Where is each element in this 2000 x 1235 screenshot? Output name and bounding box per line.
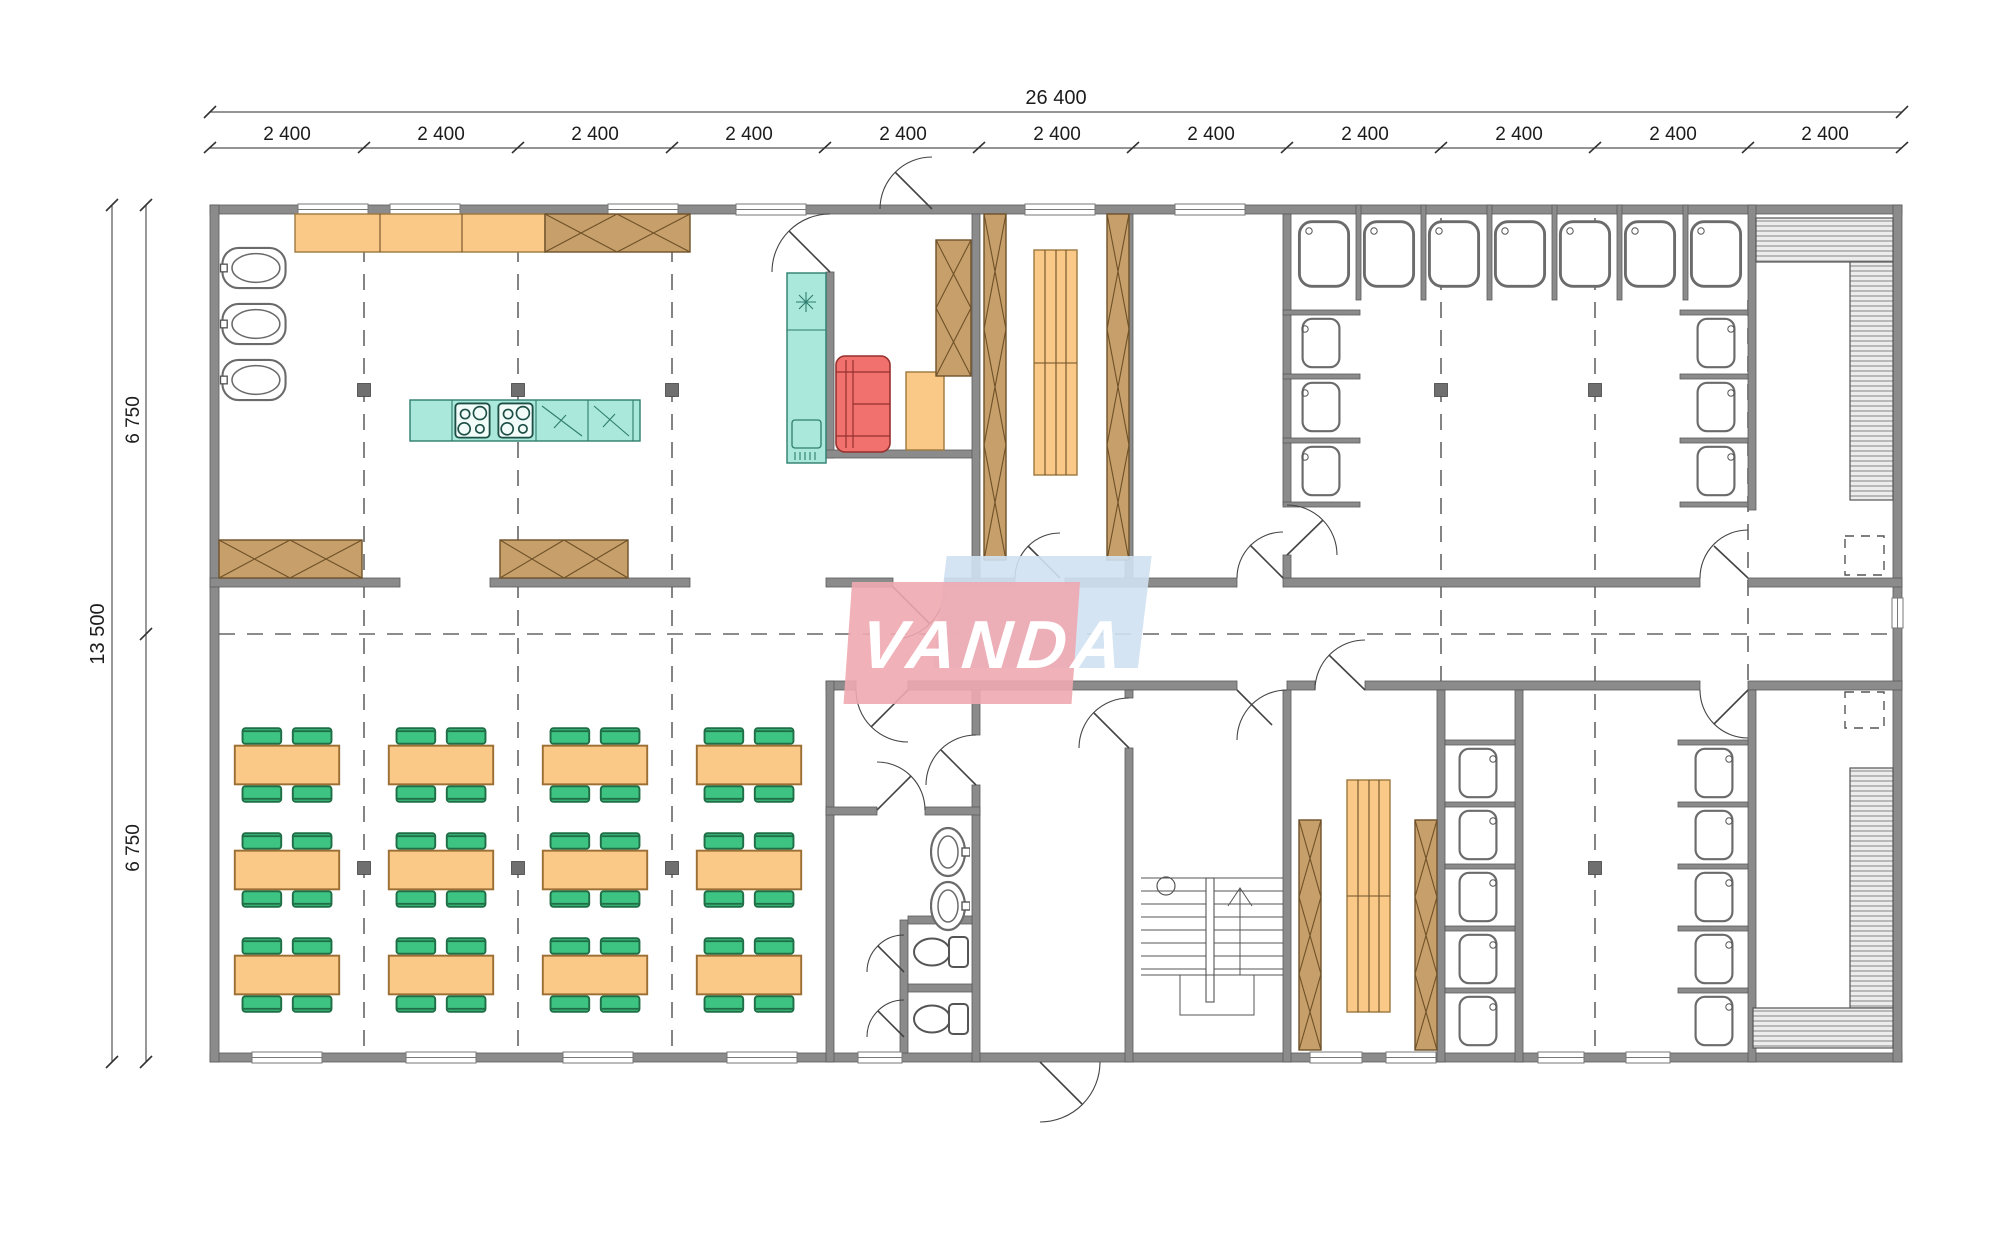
stair-start-marker — [1157, 877, 1175, 895]
window — [1538, 1052, 1584, 1063]
shower-tray — [1303, 383, 1340, 431]
window — [1025, 204, 1095, 215]
door — [772, 214, 830, 272]
dining-set — [697, 833, 801, 906]
shower-tray — [1560, 222, 1609, 287]
wc-area — [914, 828, 970, 1034]
bay-label-3: 2 400 — [571, 124, 619, 145]
watermark-text: VANDA — [857, 607, 1132, 683]
dimension-top-total: 26 400 — [204, 87, 1908, 118]
bay-label-2: 2 400 — [417, 124, 465, 145]
staff-table — [906, 372, 944, 450]
window — [727, 1052, 797, 1063]
serving-counter-hatched — [219, 540, 362, 578]
dining-set — [697, 728, 801, 801]
stove-top — [498, 403, 532, 437]
shower-tray — [1303, 447, 1340, 495]
stair-lower-flight — [1180, 975, 1254, 1015]
door — [1237, 532, 1283, 578]
shower-tray — [1691, 222, 1740, 287]
window — [1310, 1052, 1362, 1063]
toilet — [914, 1004, 968, 1034]
total-height-label: 13 500 — [87, 603, 109, 664]
bench-slatted — [1756, 218, 1893, 500]
floor-plan-drawing: 26 400 2 400 2 400 2 400 2 400 2 400 2 4… — [0, 0, 2000, 1235]
shower-room-bottom — [1678, 692, 1893, 1048]
dining-set — [235, 833, 339, 906]
door — [926, 735, 976, 785]
kitchen-sink — [221, 248, 286, 288]
kitchen-sink — [221, 304, 286, 344]
staircase — [1141, 877, 1283, 1015]
door-exterior — [1040, 1062, 1100, 1122]
kitchen-sink — [221, 360, 286, 400]
window — [1175, 204, 1245, 215]
equipment-dashed — [1845, 536, 1884, 575]
staff-room — [836, 240, 971, 452]
window — [1626, 1052, 1670, 1063]
kitchen-counter — [295, 214, 545, 252]
bench-slatted — [1753, 768, 1893, 1048]
stair-rail — [1206, 878, 1214, 1002]
window — [1386, 1052, 1436, 1063]
door — [880, 157, 932, 209]
dining-set — [389, 938, 493, 1011]
door — [1287, 505, 1337, 555]
shower-tray — [1625, 222, 1674, 287]
dining-set — [543, 728, 647, 801]
lower-half-label: 6 750 — [123, 824, 144, 872]
shower-room-top — [1283, 205, 1893, 575]
door — [1237, 690, 1287, 740]
sofa — [836, 356, 890, 452]
locker-strip-hatched — [1299, 820, 1321, 1050]
door — [867, 935, 904, 972]
bench — [1347, 780, 1390, 1012]
shower-tray — [1364, 222, 1413, 287]
dining-set — [543, 938, 647, 1011]
kitchen-island — [410, 400, 640, 441]
bench — [1034, 250, 1077, 475]
bay-label-1: 2 400 — [263, 124, 311, 145]
bay-label-10: 2 400 — [1649, 124, 1697, 145]
bay-label-5: 2 400 — [879, 124, 927, 145]
window — [406, 1052, 476, 1063]
cooktop-symbol — [796, 292, 816, 312]
kitchenette-unit — [787, 273, 826, 463]
window — [563, 1052, 633, 1063]
window — [736, 204, 806, 215]
staff-cabinet-hatched — [936, 240, 971, 376]
wall-left — [210, 205, 219, 1062]
shower-tray — [1299, 222, 1348, 287]
upper-half-label: 6 750 — [123, 396, 144, 444]
stove-top — [455, 403, 489, 437]
bay-label-7: 2 400 — [1187, 124, 1235, 145]
door — [1079, 698, 1129, 748]
cloakroom-top — [984, 214, 1129, 560]
shower-tray — [1303, 319, 1340, 367]
locker-room-bottom — [1299, 740, 1515, 1050]
dining-set — [543, 833, 647, 906]
dining-set — [235, 728, 339, 801]
serving-counter-hatched — [500, 540, 628, 578]
door — [1700, 690, 1748, 738]
locker-strip-hatched — [984, 214, 1006, 560]
bay-label-4: 2 400 — [725, 124, 773, 145]
door — [1315, 640, 1365, 690]
equipment-dashed — [1845, 692, 1884, 728]
kitchen-cabinet-hatched — [545, 214, 690, 252]
locker-strip-hatched — [1107, 214, 1129, 560]
floor-plan-canvas: 26 400 2 400 2 400 2 400 2 400 2 400 2 4… — [0, 0, 2000, 1235]
bay-label-8: 2 400 — [1341, 124, 1389, 145]
dining-set — [389, 833, 493, 906]
shower-tray — [1429, 222, 1478, 287]
window — [1892, 598, 1903, 628]
dining-set — [697, 938, 801, 1011]
toilet — [914, 937, 968, 967]
door — [867, 1000, 904, 1037]
door — [1700, 530, 1748, 578]
bay-label-6: 2 400 — [1033, 124, 1081, 145]
wall-dining-right — [826, 681, 834, 1062]
washbasin — [931, 828, 970, 876]
bay-label-9: 2 400 — [1495, 124, 1543, 145]
window — [252, 1052, 322, 1063]
door — [877, 762, 925, 810]
stair-direction-arrow — [1228, 888, 1252, 975]
total-width-label: 26 400 — [1025, 87, 1086, 109]
wall-right — [1893, 205, 1902, 1062]
dimension-left-halves: 6 750 6 750 — [123, 199, 152, 1068]
locker-strip-hatched — [1415, 820, 1437, 1050]
bay-label-11: 2 400 — [1801, 124, 1849, 145]
dimension-top-bays: 2 400 2 400 2 400 2 400 2 400 2 400 2 40… — [204, 124, 1908, 153]
window — [858, 1052, 902, 1063]
dimension-left-total: 13 500 — [87, 199, 118, 1068]
dining-set — [389, 728, 493, 801]
dining-set — [235, 938, 339, 1011]
shower-tray — [1495, 222, 1544, 287]
